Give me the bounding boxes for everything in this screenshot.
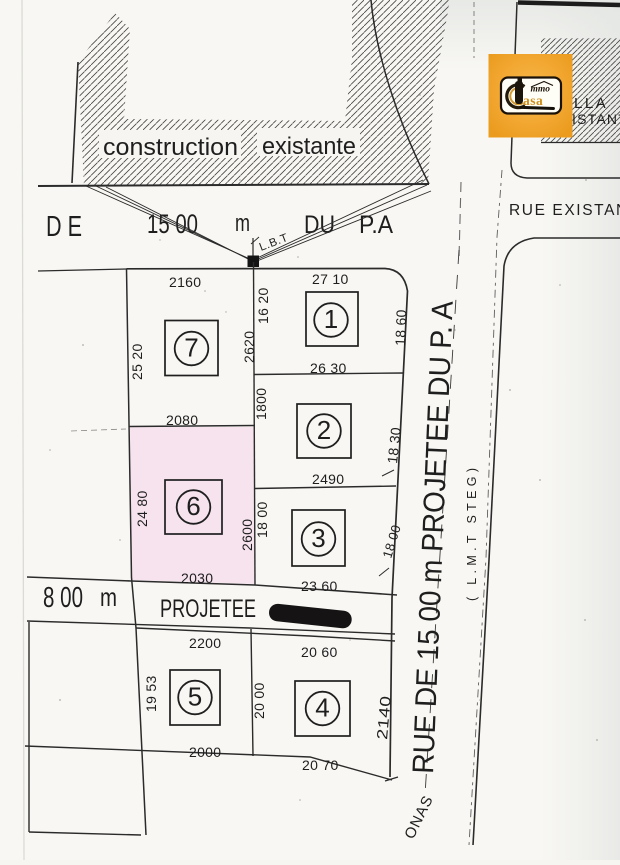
svg-text:5: 5 (188, 682, 202, 712)
svg-text:2200: 2200 (189, 635, 221, 651)
svg-text:7: 7 (184, 333, 198, 363)
svg-text:4: 4 (315, 693, 329, 723)
svg-text:ISTANT: ISTANT (572, 111, 620, 127)
svg-text:2000: 2000 (189, 744, 221, 760)
svg-text:D E: D E (46, 211, 82, 243)
svg-text:15 00: 15 00 (147, 209, 198, 239)
svg-text:3: 3 (311, 523, 325, 553)
svg-text:20 70: 20 70 (302, 757, 339, 773)
svg-text:2030: 2030 (181, 570, 213, 586)
svg-text:2: 2 (317, 415, 331, 445)
svg-text:26 30: 26 30 (310, 360, 347, 376)
svg-text:construction: construction (103, 134, 238, 161)
svg-text:1: 1 (324, 304, 338, 334)
svg-text:20 00: 20 00 (251, 682, 267, 719)
svg-text:LLA: LLA (574, 95, 608, 112)
svg-text:2490: 2490 (312, 471, 344, 487)
svg-text:m: m (235, 210, 250, 237)
svg-text:existante: existante (262, 133, 356, 160)
svg-text:23 60: 23 60 (301, 578, 338, 594)
svg-text:DU: DU (304, 211, 335, 239)
svg-text:18 60: 18 60 (392, 309, 409, 346)
svg-text:25 20: 25 20 (129, 343, 145, 380)
svg-text:P.A: P.A (359, 211, 393, 239)
svg-text:1800: 1800 (253, 388, 269, 420)
svg-text:27 10: 27 10 (312, 271, 349, 287)
svg-text:16 20: 16 20 (255, 287, 271, 324)
svg-text:2160: 2160 (169, 274, 201, 290)
svg-text:PROJETEE: PROJETEE (160, 595, 256, 623)
svg-text:6: 6 (186, 491, 200, 521)
svg-text:m: m (100, 582, 117, 612)
svg-text:RUE EXISTANTE: RUE EXISTANTE (509, 202, 620, 219)
svg-text:19 53: 19 53 (143, 675, 159, 712)
svg-text:18 00: 18 00 (254, 501, 270, 538)
svg-text:asa: asa (523, 93, 543, 108)
svg-text:2620: 2620 (241, 331, 257, 363)
svg-text:20 60: 20 60 (301, 644, 338, 660)
svg-text:2600: 2600 (239, 519, 255, 551)
svg-text:24 80: 24 80 (134, 490, 150, 527)
svg-text:2080: 2080 (166, 412, 198, 428)
svg-text:8 00: 8 00 (43, 582, 83, 614)
